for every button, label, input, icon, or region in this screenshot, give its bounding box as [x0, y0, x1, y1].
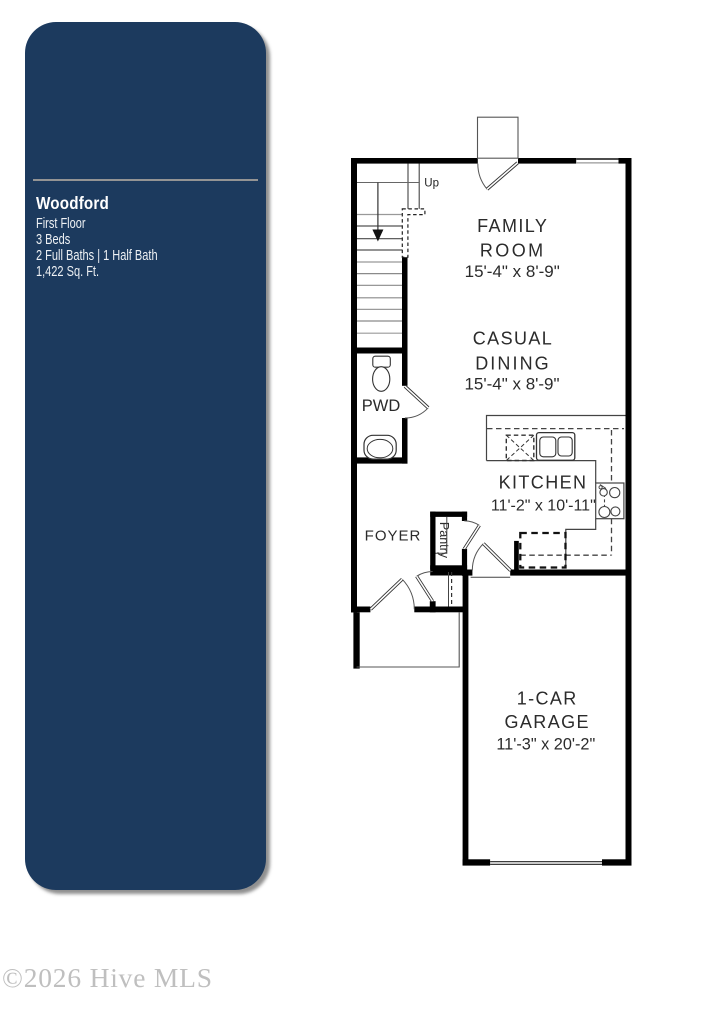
svg-text:KITCHEN: KITCHEN [499, 473, 588, 493]
svg-text:15'-4" x 8'-9": 15'-4" x 8'-9" [465, 262, 560, 281]
svg-text:15'-4" x 8'-9": 15'-4" x 8'-9" [464, 375, 559, 394]
svg-text:DINING: DINING [475, 353, 551, 373]
svg-text:ROOM: ROOM [480, 241, 546, 261]
svg-text:Up: Up [424, 178, 439, 190]
svg-text:11'-3" x 20'-2": 11'-3" x 20'-2" [496, 736, 595, 754]
svg-text:FAMILY: FAMILY [477, 216, 548, 236]
svg-text:GARAGE: GARAGE [504, 712, 589, 732]
svg-text:PWD: PWD [362, 397, 401, 415]
svg-text:FOYER: FOYER [365, 528, 422, 545]
svg-text:CASUAL: CASUAL [473, 329, 553, 349]
svg-text:11'-2" x 10'-11": 11'-2" x 10'-11" [491, 498, 596, 515]
svg-text:1-CAR: 1-CAR [517, 689, 578, 709]
